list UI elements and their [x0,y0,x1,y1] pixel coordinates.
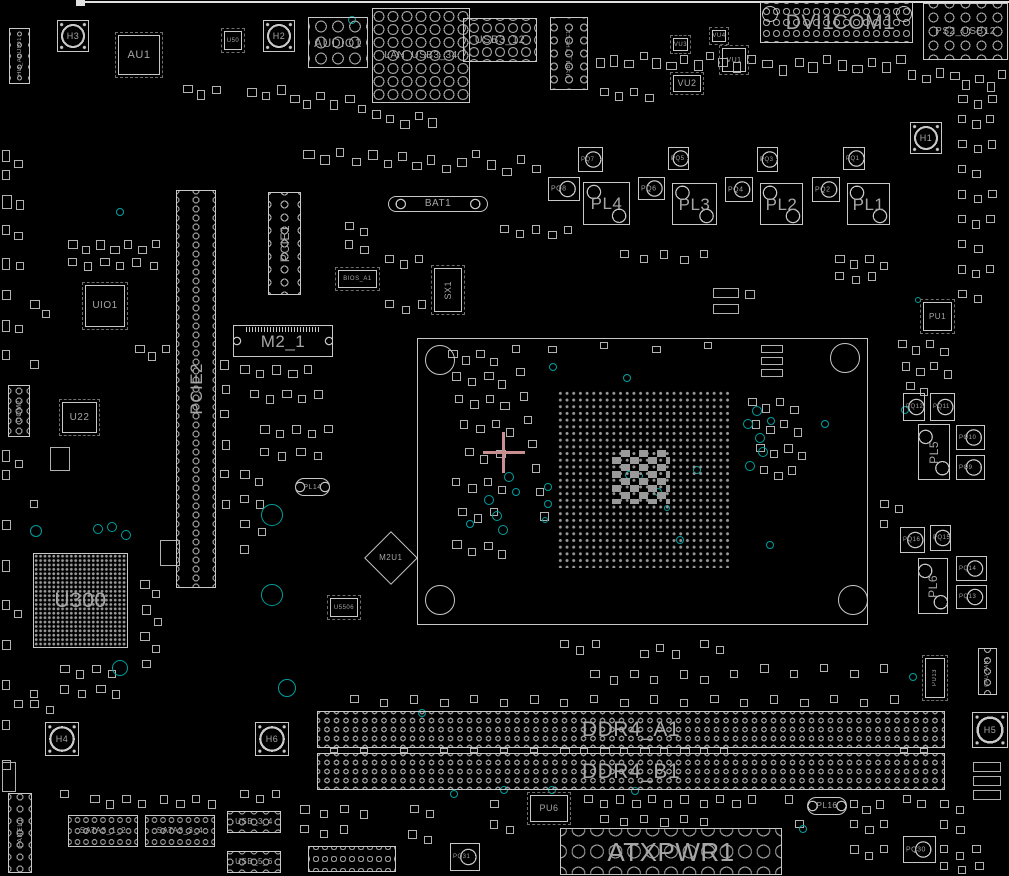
smd-component [958,115,966,123]
smd-component [548,231,557,239]
usb-3-4: USB_3_4 [227,811,281,833]
smd-component [272,790,280,798]
usb-5-6: USB_5_6 [227,851,281,873]
smd-component [584,795,593,803]
h5: H5 [972,712,1008,748]
smd-component [882,62,891,73]
pq1-label: PQ1 [846,156,860,162]
pq10: PQ10 [956,425,985,450]
via [116,208,124,216]
smd-component [850,845,859,854]
smd-component [415,112,423,120]
smd-component [14,610,22,618]
smd-component [500,699,508,707]
smd-component [487,160,496,170]
usb-3-4-label: USB_3_4 [235,818,273,826]
smd-component [303,150,315,159]
pq31: PQ31 [450,843,480,871]
smd-component [645,94,654,102]
smd-component [850,800,858,808]
pl4: PL4 [583,182,630,225]
smd-component [78,690,86,698]
smd-component [917,800,926,808]
panel1: PANEL1 [8,793,32,873]
pu1-label: PU1 [929,313,946,321]
smd-component [890,695,899,704]
smd-component [490,800,499,808]
smd-component [152,645,160,653]
pq14: PQ14 [956,556,987,581]
u300-label: U300 [54,590,106,611]
smd-component [272,365,281,375]
smd-component [372,110,381,119]
smd-component [779,65,787,76]
smd-component [15,460,23,468]
smd-component [490,820,498,829]
smd-component [903,795,911,803]
smd-component [998,70,1006,79]
smd-component [640,650,649,658]
m2u1: M2U1 [364,531,418,585]
smd-component [122,795,131,803]
smd-component [850,670,859,678]
pl1-label: PL1 [853,196,885,213]
u50-label: U50 [227,38,240,44]
smd-component [732,800,741,808]
pq15-label: PQ15 [933,535,950,541]
smd-component [402,306,410,314]
smd-component [197,90,205,100]
smd-component [316,92,325,100]
smd-component [14,160,23,168]
smd-component [716,795,724,803]
h2: H2 [263,20,295,52]
smd-component [240,790,249,798]
smd-component [880,500,889,508]
smd-component [975,862,984,870]
smd-component [862,806,871,814]
usb3-12-label: USB3_12 [475,35,526,46]
smd-component [632,800,641,808]
smd-component [740,699,748,707]
smd-component [694,60,703,71]
smd-component [700,250,708,258]
smd-component [615,92,623,101]
smd-component [350,695,359,703]
smd-component [838,60,847,71]
pu6-label: PU6 [539,804,558,813]
vu3-label: VU3 [674,42,687,48]
bios-a1: BIOS_A1 [338,270,377,288]
smd-component [500,225,509,233]
smd-component [516,230,524,238]
smd-component [30,690,38,698]
pq12: PQ12 [903,393,925,421]
smd-component [360,246,369,254]
smd-component [672,650,680,659]
smd-component [973,762,1001,772]
smd-component [713,304,739,314]
smd-component [360,228,368,236]
smd-component [2,470,10,480]
smd-component [868,272,876,281]
smd-component [14,700,23,708]
smd-component [700,676,709,684]
smd-component [660,818,669,827]
via [909,673,917,681]
pq7-label: PQ7 [581,157,595,163]
pq13-label: PQ13 [959,594,976,600]
smd-component [345,240,353,249]
vu3: VU3 [673,38,688,51]
pq12-label: PQ12 [906,404,923,410]
smd-component [530,695,539,704]
smd-component [30,300,40,309]
smd-component [60,665,70,673]
smd-component [640,255,648,263]
pq14-label: PQ14 [959,566,976,572]
smd-component [162,345,170,353]
smd-component [208,800,216,809]
smd-component [384,160,392,168]
au1: AU1 [118,35,160,75]
u22: U22 [62,402,97,433]
smd-component [288,370,298,378]
smd-component [830,695,838,703]
smd-component [340,825,348,834]
smd-component [973,790,1001,800]
smd-component [640,815,648,823]
smd-component [2,258,10,270]
smd-component [2,150,10,162]
smd-component [46,706,54,714]
pq4-label: PQ4 [728,186,744,193]
smd-component [656,644,664,652]
smd-component [800,699,809,707]
via [107,522,117,532]
smd-component [880,262,888,270]
smd-component [956,806,964,814]
smd-component [616,795,624,804]
smd-component [426,810,434,818]
h1: H1 [910,122,942,154]
h5-label: H5 [984,726,997,735]
smd-component [124,240,132,249]
smd-component [330,100,338,110]
smd-component [700,818,708,826]
smd-component [385,255,394,263]
front-audio-header: HD_AUDIO1 [9,28,30,84]
smd-component [2,640,11,650]
smd-component [398,152,407,161]
smd-component [183,85,193,93]
smd-component [958,265,966,274]
smd-component [82,246,90,254]
smd-component [895,505,903,513]
smd-component [112,690,120,699]
smd-component [700,800,708,808]
smd-component [304,365,312,374]
smd-component [2,762,16,792]
usb3-typec1-label: USB3_TYPEC1 [566,30,572,78]
smd-component [2,680,10,690]
u300: U300 [33,553,128,648]
smd-component [152,590,160,598]
smd-component [620,250,629,258]
smd-component [958,140,967,148]
smd-component [240,365,250,374]
smd-component [408,830,417,839]
smd-component [710,695,719,703]
uio1: UIO1 [85,285,125,327]
smd-component [385,300,394,308]
smd-component [930,362,938,370]
smd-component [2,225,10,235]
smd-component [716,646,724,654]
smd-component [247,88,257,97]
smd-component [986,215,995,223]
smd-component [940,862,948,870]
smd-component [138,246,147,254]
smd-component [96,240,105,250]
smd-component [336,148,344,157]
smd-component [868,58,876,67]
h6: H6 [255,722,289,756]
smd-component [220,410,229,418]
smd-component [630,670,639,678]
smd-component [260,448,269,456]
smd-component [972,270,980,278]
vu4: VU4 [712,30,726,42]
smd-component [428,118,437,128]
smd-component [2,350,10,360]
socket-center-pads [612,450,670,504]
smd-component [240,470,250,479]
via [915,297,921,303]
pq13: PQ13 [956,585,987,609]
via [121,530,131,540]
via [93,524,103,534]
smd-component [517,155,525,164]
com2: COM2 [8,385,30,437]
smd-component [100,258,110,266]
smd-component [880,664,888,673]
m2-1-label: M2_1 [261,333,306,350]
pq15: PQ15 [930,525,951,551]
via [450,790,458,798]
smd-component [610,676,618,685]
smd-component [30,500,38,508]
sata3-1-2: SATA3_1_2 [68,815,138,847]
smd-component [160,795,168,804]
smd-component [762,60,773,68]
socket-corner-circle [830,343,860,373]
smd-component [16,262,24,270]
pcie1: PCIE1 [268,192,301,295]
smd-component [277,85,286,95]
pq10-label: PQ10 [959,435,976,441]
pq30-label: PQ30 [906,846,926,853]
smd-component [135,345,145,353]
bat1-label: BAT1 [425,199,451,209]
smd-component [320,155,330,165]
smd-component [972,845,981,853]
smd-component [192,795,200,803]
smd-component [176,800,185,808]
smd-component [730,670,738,678]
smd-component [76,670,84,679]
pl14-label: PL14 [303,484,321,491]
pq3-label: PQ3 [760,157,774,163]
smd-component [258,528,266,536]
pq11-label: PQ11 [933,404,950,410]
smd-component [785,795,793,804]
smd-component [680,256,689,264]
smd-component [240,545,249,554]
smd-component [974,195,982,203]
h3-label: H3 [67,32,80,41]
smd-component [340,805,349,813]
smd-component [650,695,658,704]
smd-component [440,699,449,707]
smd-component [290,95,300,103]
smd-component [502,168,512,176]
smd-component [412,162,422,170]
ddr4-a1-label: DDR4_A1 [582,719,680,740]
smd-component [14,232,23,240]
com1: COM1 [816,9,912,35]
smd-component [532,165,541,173]
smd-component [2,195,12,209]
smd-component [292,425,301,434]
smd-component [835,255,845,263]
ddr4-b1: DDR4_B1 [317,753,945,790]
smd-component [620,818,628,826]
via [278,679,296,697]
smd-component [850,820,858,828]
smd-component [212,86,221,94]
cpu-fan1: CPU_FAN1 [978,648,997,695]
pq16: PQ16 [900,527,925,553]
via [30,525,42,537]
smd-component [973,776,1001,786]
smd-component [90,795,100,803]
u5506-label: U5506 [334,605,354,611]
smd-component [880,845,888,853]
smd-component [410,805,419,813]
pl3: PL3 [672,183,717,225]
smd-component [650,676,658,684]
smd-component [42,310,50,318]
smd-component [320,830,328,838]
smd-component [680,55,688,64]
smd-component [950,72,960,80]
smd-component [154,618,162,626]
com1-label: COM1 [833,12,896,33]
sata3-3-4: SATA3_3_4 [145,815,215,847]
smd-component [314,390,323,399]
smd-component [680,815,688,823]
smd-component [472,150,480,158]
smd-component [132,258,141,267]
vu1: VU1 [722,48,746,72]
pl6-label: PL6 [927,575,939,598]
pq6: PQ6 [638,177,665,200]
smd-component [345,95,355,103]
smd-component [648,795,656,803]
u5506: U5506 [330,598,358,617]
smd-component [640,52,648,60]
smd-component [896,55,906,64]
smd-component [410,695,418,704]
pq2-label: PQ2 [815,186,831,193]
smd-component [30,700,39,708]
m2-1: M2_1 [233,325,333,357]
smd-component [936,68,944,78]
smd-component [30,360,39,369]
alignment-cross-v [502,432,505,473]
pq11: PQ11 [930,393,955,421]
smd-component [116,262,124,270]
smd-component [972,220,980,229]
ddr4-b1-label: DDR4_B1 [582,761,680,782]
smd-component [880,520,888,528]
pq30: PQ30 [903,836,936,863]
smd-component [590,670,600,678]
smd-component [16,200,24,210]
smd-component [660,250,668,259]
smd-component [940,348,949,356]
bat1: BAT1 [388,196,488,212]
audio1: AUDIO1 [308,17,368,68]
vu1-label: VU1 [726,57,741,64]
smd-component [880,820,888,828]
smd-component [276,430,284,438]
smd-component [96,685,106,693]
smd-component [106,800,114,809]
smd-component [748,795,756,804]
smd-component [908,70,916,80]
smd-component [303,100,311,109]
smd-component [974,100,982,109]
smd-component [262,92,270,100]
vu2: VU2 [673,75,701,92]
pu6: PU6 [530,795,568,822]
smd-component [352,158,361,166]
smd-component [876,800,884,809]
pu13-label: PU13 [932,669,938,686]
h2-label: H2 [273,32,286,41]
usb-5-6-label: USB_5_6 [235,858,273,866]
smd-component [380,699,388,707]
smd-component [902,362,910,371]
smd-component [220,360,229,370]
smd-component [470,695,478,703]
h4-label: H4 [56,735,69,744]
smd-component [138,800,146,808]
smd-component [250,390,259,398]
smd-component [922,75,931,83]
cpu-fan1-label: CPU_FAN1 [985,657,990,687]
via [261,584,283,606]
smd-component [860,699,868,707]
pl5: PL5 [918,424,950,480]
smd-component [596,58,605,68]
smd-component [986,115,994,123]
smd-component [256,370,264,378]
smd-component [795,58,804,67]
pq9: PQ9 [956,455,985,480]
